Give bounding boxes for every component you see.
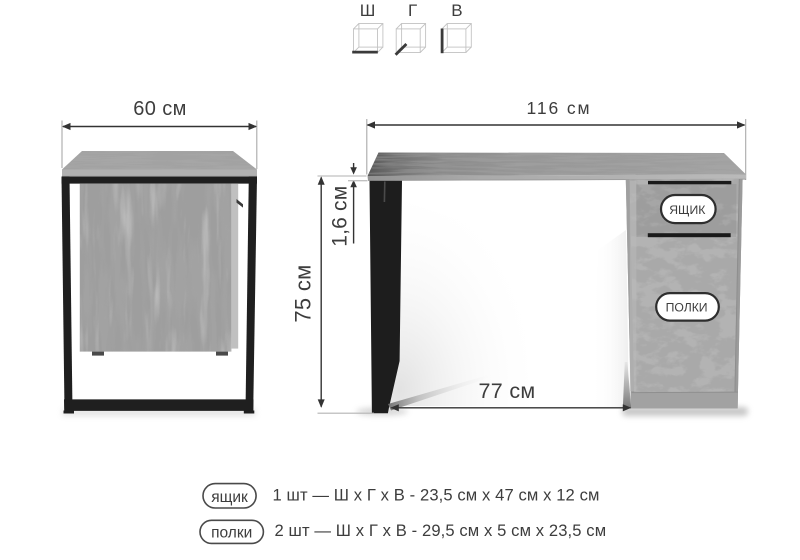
svg-text:77 см: 77 см xyxy=(479,379,536,403)
svg-text:75 см: 75 см xyxy=(291,264,316,322)
svg-text:ПОЛКИ: ПОЛКИ xyxy=(666,301,708,315)
svg-text:Ш: Ш xyxy=(360,1,376,20)
svg-text:В: В xyxy=(451,1,462,20)
svg-text:полки: полки xyxy=(211,525,252,542)
svg-text:116 см: 116 см xyxy=(527,98,592,118)
svg-text:1,6 см: 1,6 см xyxy=(329,186,352,247)
svg-text:ЯЩИК: ЯЩИК xyxy=(669,203,706,217)
svg-text:Г: Г xyxy=(408,1,417,20)
svg-text:ящик: ящик xyxy=(211,489,248,506)
svg-text:2 шт — Ш х Г х В - 29,5 см х: 2 шт — Ш х Г х В - 29,5 см х 5 см х 23,5… xyxy=(275,521,607,540)
svg-text:1 шт — Ш х Г х В - 23,5 см х 4: 1 шт — Ш х Г х В - 23,5 см х 47 см х 12 … xyxy=(273,486,600,505)
svg-text:60 см: 60 см xyxy=(133,98,187,120)
